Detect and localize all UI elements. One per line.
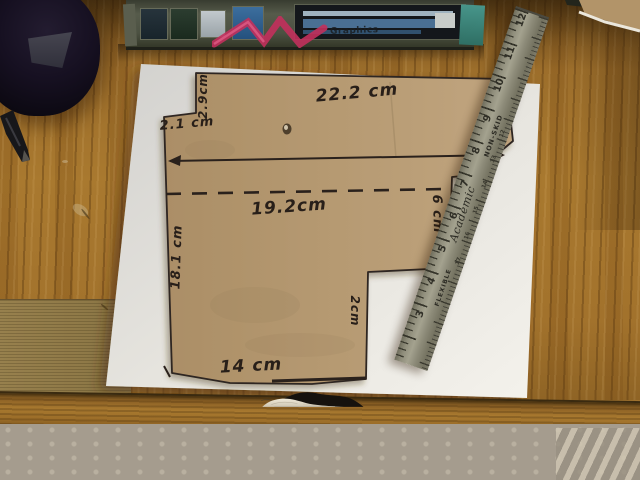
box-teal-patch — [459, 4, 485, 45]
marker-pen — [0, 106, 42, 170]
box-end-cap — [123, 4, 137, 47]
pink-scribble-mark — [212, 16, 334, 48]
cardboard-blotch — [210, 287, 300, 323]
box-screenshot-thumbnail — [140, 8, 168, 40]
label-step-height: 2cm — [348, 296, 362, 327]
cardboard-blotch — [185, 140, 235, 160]
label-bottom-width: 14 cm — [219, 354, 282, 377]
label-left-height: 18.1 cm — [168, 224, 185, 289]
box-graphics-text: Graphics — [330, 25, 379, 37]
mug-reflection — [28, 32, 72, 68]
punch-hole-center-light — [284, 125, 288, 130]
cardboard-blotch — [245, 333, 355, 357]
panel-chip — [435, 13, 455, 28]
graphics-software-box: Graphics — [126, 0, 474, 50]
fabric-layer — [0, 390, 640, 480]
label-notch-height: 2.9cm — [196, 73, 210, 119]
torn-cardboard-corner — [565, 0, 640, 40]
box-screenshot-thumbnail — [170, 8, 198, 40]
photo-desk-scene: 2.9cm 2.1 cm 22.2 cm 5.2cm 19.2cm 6 cm 1… — [0, 0, 640, 480]
